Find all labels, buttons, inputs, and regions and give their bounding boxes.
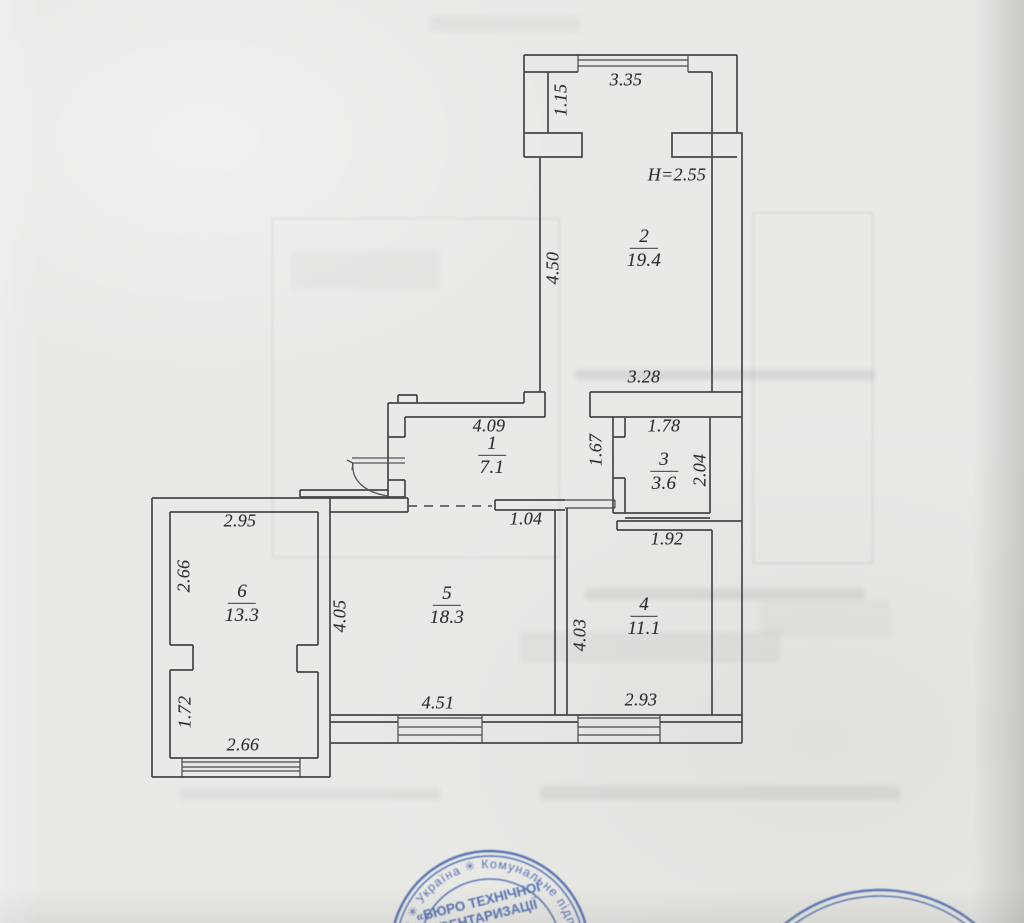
room-number: 2	[630, 227, 658, 249]
room-number: 6	[228, 582, 256, 604]
dimension-label: 4.03	[570, 619, 591, 652]
room-label: 411.1	[627, 595, 660, 639]
dimension-label: 1.72	[175, 696, 196, 729]
room-number: 3	[650, 450, 678, 472]
room-number: 4	[630, 595, 658, 617]
dimension-label: 2.66	[227, 735, 260, 756]
dimension-label: 2.95	[224, 511, 257, 532]
dimension-label: 3.35	[610, 70, 643, 91]
dimension-label: 1.04	[510, 509, 543, 530]
dimension-label: H=2.55	[648, 165, 706, 186]
dimension-label: 1.78	[648, 416, 681, 437]
dimension-label: 1.15	[551, 84, 572, 117]
room-label: 613.3	[225, 582, 259, 626]
scanned-floor-plan-page: м.Вишневе ✳ Україна ✳ Комунальне підпр «…	[0, 0, 1024, 923]
room-label: 17.1	[478, 434, 506, 478]
dimension-label: 1.67	[586, 434, 607, 467]
dimension-label: 2.04	[690, 454, 711, 487]
plan-labels: 3.351.15H=2.554.503.284.091.671.782.041.…	[0, 0, 1024, 923]
room-area: 3.6	[650, 474, 678, 494]
dimension-label: 4.50	[543, 252, 564, 285]
room-number: 1	[478, 434, 506, 456]
dimension-label: 3.28	[628, 367, 661, 388]
dimension-label: 1.92	[651, 529, 684, 550]
room-area: 7.1	[478, 458, 506, 478]
dimension-label: 2.66	[174, 560, 195, 593]
room-label: 33.6	[650, 450, 678, 494]
dimension-label: 4.05	[330, 600, 351, 633]
room-label: 518.3	[430, 584, 464, 628]
room-area: 11.1	[627, 619, 660, 639]
room-label: 219.4	[627, 227, 661, 271]
dimension-label: 2.93	[625, 690, 658, 711]
dimension-label: 4.51	[422, 693, 455, 714]
room-area: 19.4	[627, 251, 661, 271]
room-area: 18.3	[430, 608, 464, 628]
room-area: 13.3	[225, 606, 259, 626]
room-number: 5	[433, 584, 461, 606]
